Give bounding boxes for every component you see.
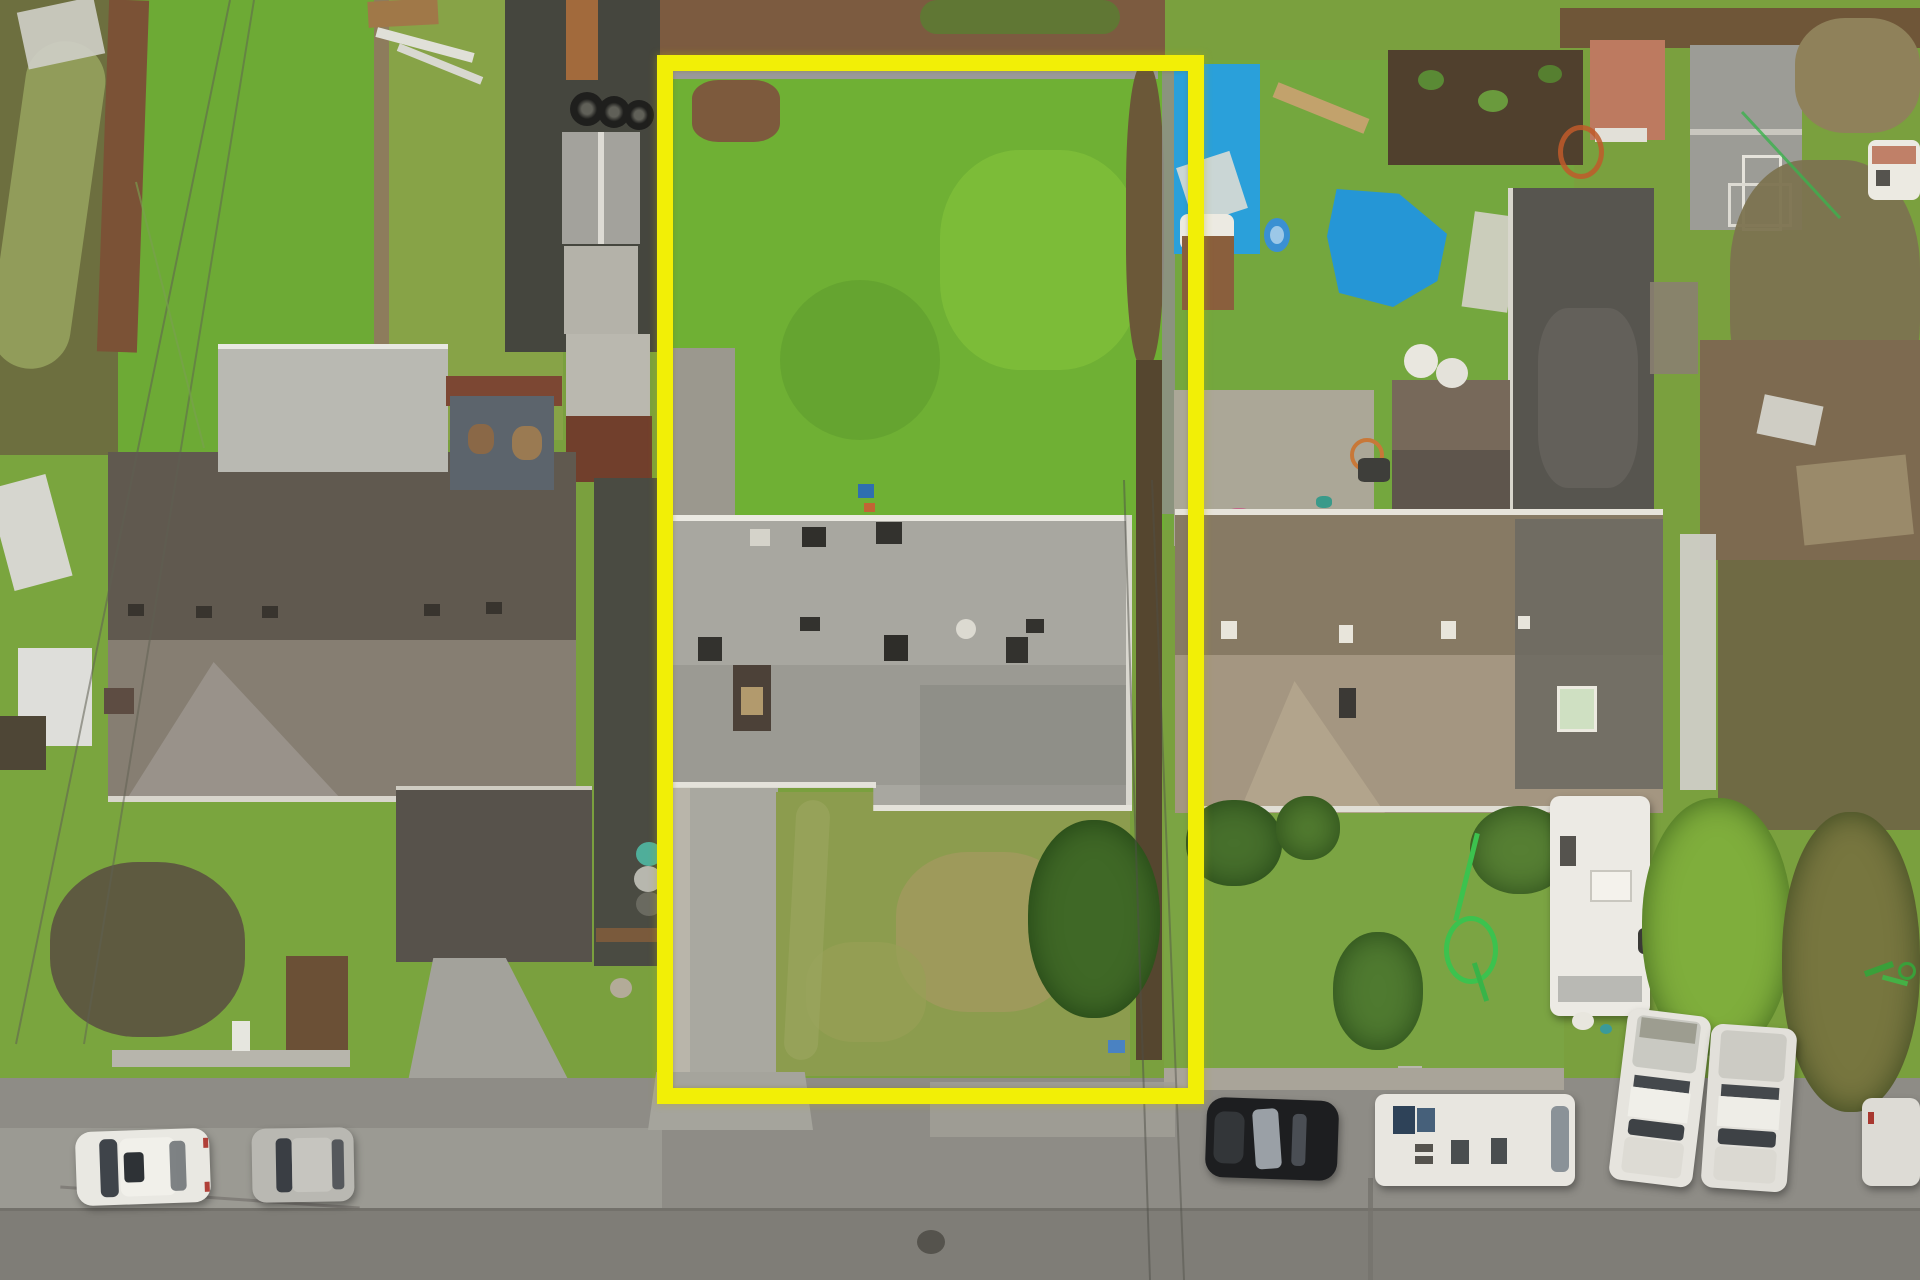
car-white <box>75 1128 212 1207</box>
dark-mower <box>1358 458 1390 482</box>
garage-gutter <box>396 786 592 790</box>
right-roof-vent-2 <box>1339 625 1353 643</box>
rv-gray-band <box>1558 976 1642 1002</box>
green-bike <box>1864 956 1910 998</box>
garden-plant-2 <box>1478 90 1508 112</box>
white-lattice <box>1650 282 1698 374</box>
shed-ridge-line <box>1690 129 1802 135</box>
carport-roof <box>218 344 448 472</box>
right-roof-hip-gable <box>1239 681 1385 813</box>
tree-stump <box>610 978 632 998</box>
truck2-hood <box>1713 1146 1777 1184</box>
soffit-vent-5 <box>486 602 502 614</box>
soffit-vent-2 <box>196 606 212 618</box>
van-vent-1 <box>1415 1144 1433 1152</box>
car-gray-windshield <box>276 1138 293 1192</box>
van-vent-2 <box>1415 1156 1433 1164</box>
garden-hose <box>1438 832 1508 1002</box>
soffit-vent-3 <box>262 606 278 618</box>
gravel-shoulder <box>1164 1068 1564 1090</box>
car-black-windshield <box>1252 1108 1282 1170</box>
right-roof-dark-wing <box>1515 519 1663 789</box>
right-garage <box>1508 188 1654 538</box>
rv-dark-window <box>1560 836 1576 866</box>
lot-top-bushes <box>920 0 1120 34</box>
van-window-2 <box>1491 1138 1507 1164</box>
car-gray <box>251 1127 354 1203</box>
car-white-sunroof <box>123 1152 144 1183</box>
right-house-roof <box>1175 509 1663 813</box>
garden-plant-1 <box>1418 70 1444 90</box>
car-black-hood-shine <box>1213 1111 1245 1164</box>
rust-roof <box>566 416 652 482</box>
junk-tan-roof <box>1796 454 1914 545</box>
kiddie-pool <box>1264 218 1290 252</box>
van-windshield <box>1551 1106 1569 1172</box>
partial-vehicle <box>1862 1098 1920 1186</box>
junk-white-panel <box>1756 394 1823 446</box>
sunroom-furniture-1 <box>468 424 494 454</box>
toy-camper-win <box>1876 170 1890 186</box>
backyard-conifer-b <box>1276 796 1340 860</box>
white-chairs <box>1404 344 1470 390</box>
rv-roof-box <box>1590 870 1632 902</box>
rv-motorhome <box>1550 796 1650 1016</box>
soffit-vent-4 <box>424 604 440 616</box>
right-roof-chimney <box>1339 688 1356 718</box>
right-junk-area <box>1700 340 1920 560</box>
chair-2 <box>1436 358 1468 388</box>
truck1-roof <box>1628 1086 1691 1123</box>
car-white-windshield <box>99 1139 119 1198</box>
aerial-property-photo <box>0 0 1920 1280</box>
chair-1 <box>1404 344 1438 378</box>
right-roof-vent-3 <box>1441 621 1456 639</box>
garden-plant-3 <box>1538 65 1562 83</box>
property-boundary <box>657 55 1204 1104</box>
dark-side-shed <box>0 716 46 770</box>
manhole <box>917 1230 945 1254</box>
left-house-chimney <box>104 688 134 714</box>
toy-teal <box>1316 496 1332 508</box>
car-white-rear-glass <box>169 1141 187 1192</box>
car-gray-roof <box>292 1137 333 1192</box>
garden-bed-top <box>1388 50 1583 165</box>
garage-roof <box>396 786 592 962</box>
right-roof-skylight <box>1557 686 1597 732</box>
retaining-wall <box>112 1050 350 1067</box>
sunroom-glass-roof <box>450 396 554 490</box>
van-roof-panel-2 <box>1417 1108 1435 1132</box>
side-fence-bottom <box>596 928 662 942</box>
right-of-house-scrub <box>1718 560 1920 830</box>
orange-cord-coil <box>1558 125 1604 179</box>
truck1-hood <box>1621 1136 1685 1179</box>
car-black-rear-glass <box>1291 1114 1307 1166</box>
bike-wheel <box>1898 962 1916 980</box>
kiddie-pool-inner <box>1270 226 1284 244</box>
van-window-1 <box>1451 1140 1469 1164</box>
front-garden-bed <box>286 956 348 1056</box>
car-white-tail-1 <box>203 1138 208 1148</box>
carport-gutter <box>218 344 448 349</box>
swing-frame <box>367 0 438 28</box>
tire-3 <box>624 100 654 130</box>
toy-camper <box>1868 140 1920 200</box>
cross-seam <box>1368 1178 1373 1280</box>
bike-bar-1 <box>1864 961 1894 977</box>
hose-ring <box>1444 916 1498 984</box>
car-gray-rear-glass <box>332 1139 345 1189</box>
front-conifer <box>1333 932 1423 1050</box>
salmon-shed <box>1590 40 1665 140</box>
soffit-vent-1 <box>128 604 144 616</box>
lane-seam <box>0 1208 1920 1211</box>
asphalt-lower-band <box>0 1208 1920 1280</box>
toy-camper-top <box>1872 146 1916 164</box>
truck2-bed <box>1718 1030 1787 1082</box>
white-disc <box>1572 1012 1594 1030</box>
right-roof-vent-1 <box>1221 621 1237 639</box>
lumber-rack <box>566 0 598 80</box>
teal-can <box>1600 1024 1612 1034</box>
rv-yard-items <box>1572 1012 1622 1038</box>
car-white-tail-2 <box>205 1182 210 1192</box>
salmon-shed-trim <box>1595 128 1647 142</box>
partial-tail-light <box>1868 1112 1874 1124</box>
right-roof-vent-4 <box>1518 616 1530 629</box>
sunroom-furniture-2 <box>512 426 542 460</box>
garage-stain <box>1538 308 1638 488</box>
truck2-roof <box>1717 1096 1781 1130</box>
dead-branch-mass <box>1795 18 1920 133</box>
utility-pad <box>232 1021 250 1051</box>
truck-2 <box>1700 1023 1797 1193</box>
shed-ridge <box>598 132 604 244</box>
van-roof-panel-1 <box>1393 1106 1415 1134</box>
car-black <box>1205 1097 1340 1182</box>
van-white <box>1375 1094 1575 1186</box>
twiggy-shrub <box>50 862 245 1037</box>
shed-pad <box>564 246 638 334</box>
hose-tail-up <box>1453 833 1480 922</box>
garden-shed <box>562 132 640 244</box>
white-greenhouse <box>1680 534 1716 790</box>
truck2-windshield <box>1717 1128 1776 1148</box>
